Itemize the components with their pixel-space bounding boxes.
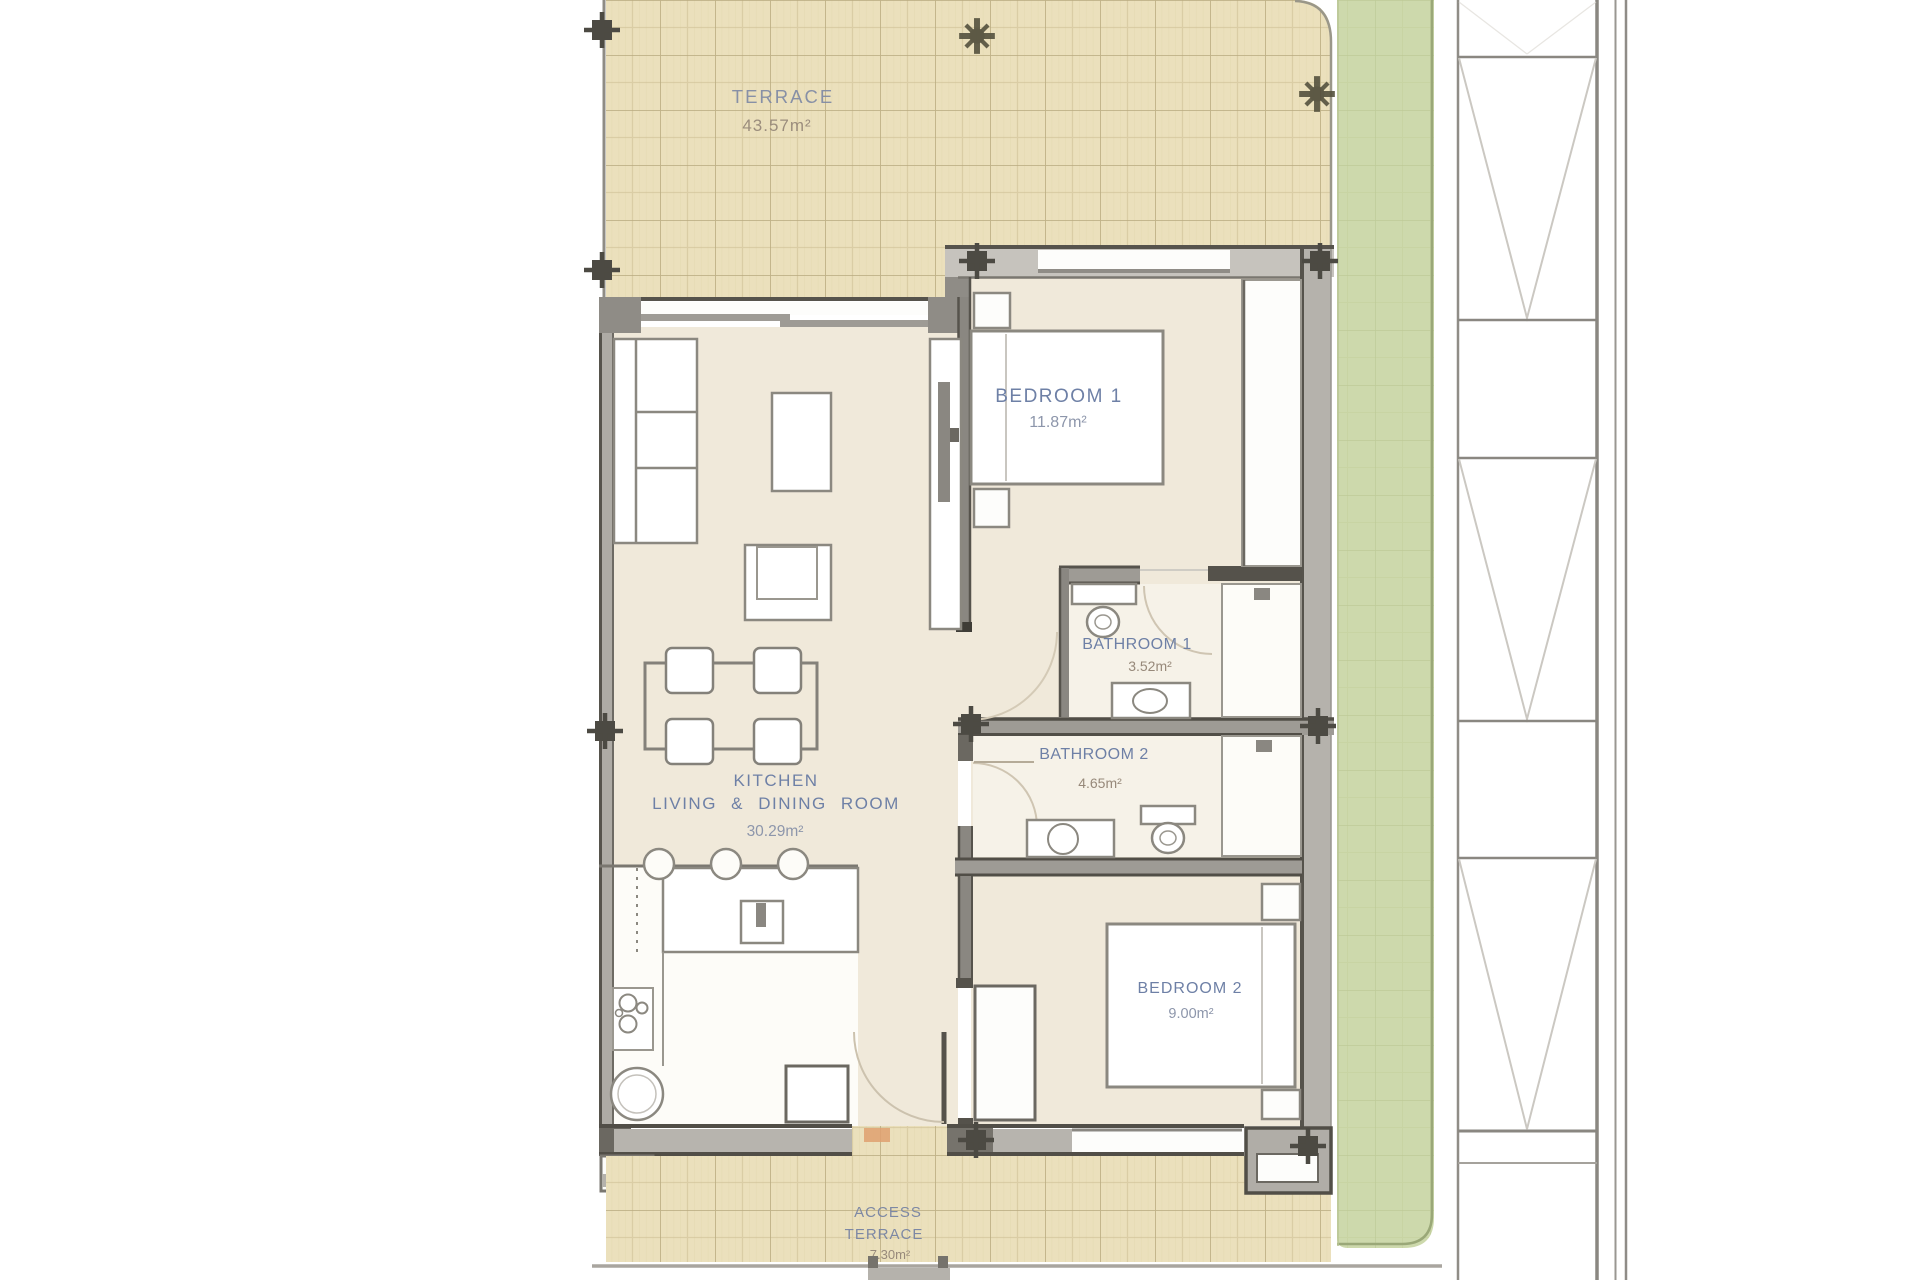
svg-text:BEDROOM 1: BEDROOM 1 [995,386,1123,407]
svg-text:KITCHEN: KITCHEN [733,771,818,790]
svg-text:11.87m²: 11.87m² [1029,414,1087,431]
svg-text:TERRACE: TERRACE [732,86,834,107]
svg-text:30.29m²: 30.29m² [747,823,804,840]
svg-text:4.65m²: 4.65m² [1078,775,1122,791]
svg-text:BATHROOM 1: BATHROOM 1 [1082,636,1192,653]
svg-text:LIVING & DINING ROOM: LIVING & DINING ROOM [652,794,900,813]
svg-text:ACCESS: ACCESS [854,1204,922,1221]
svg-text:9.00m²: 9.00m² [1168,1006,1213,1022]
svg-text:3.52m²: 3.52m² [1128,658,1172,674]
svg-text:BEDROOM 2: BEDROOM 2 [1137,980,1242,997]
svg-text:BATHROOM 2: BATHROOM 2 [1039,746,1149,763]
svg-text:TERRACE: TERRACE [845,1226,924,1243]
svg-text:43.57m²: 43.57m² [742,116,811,135]
